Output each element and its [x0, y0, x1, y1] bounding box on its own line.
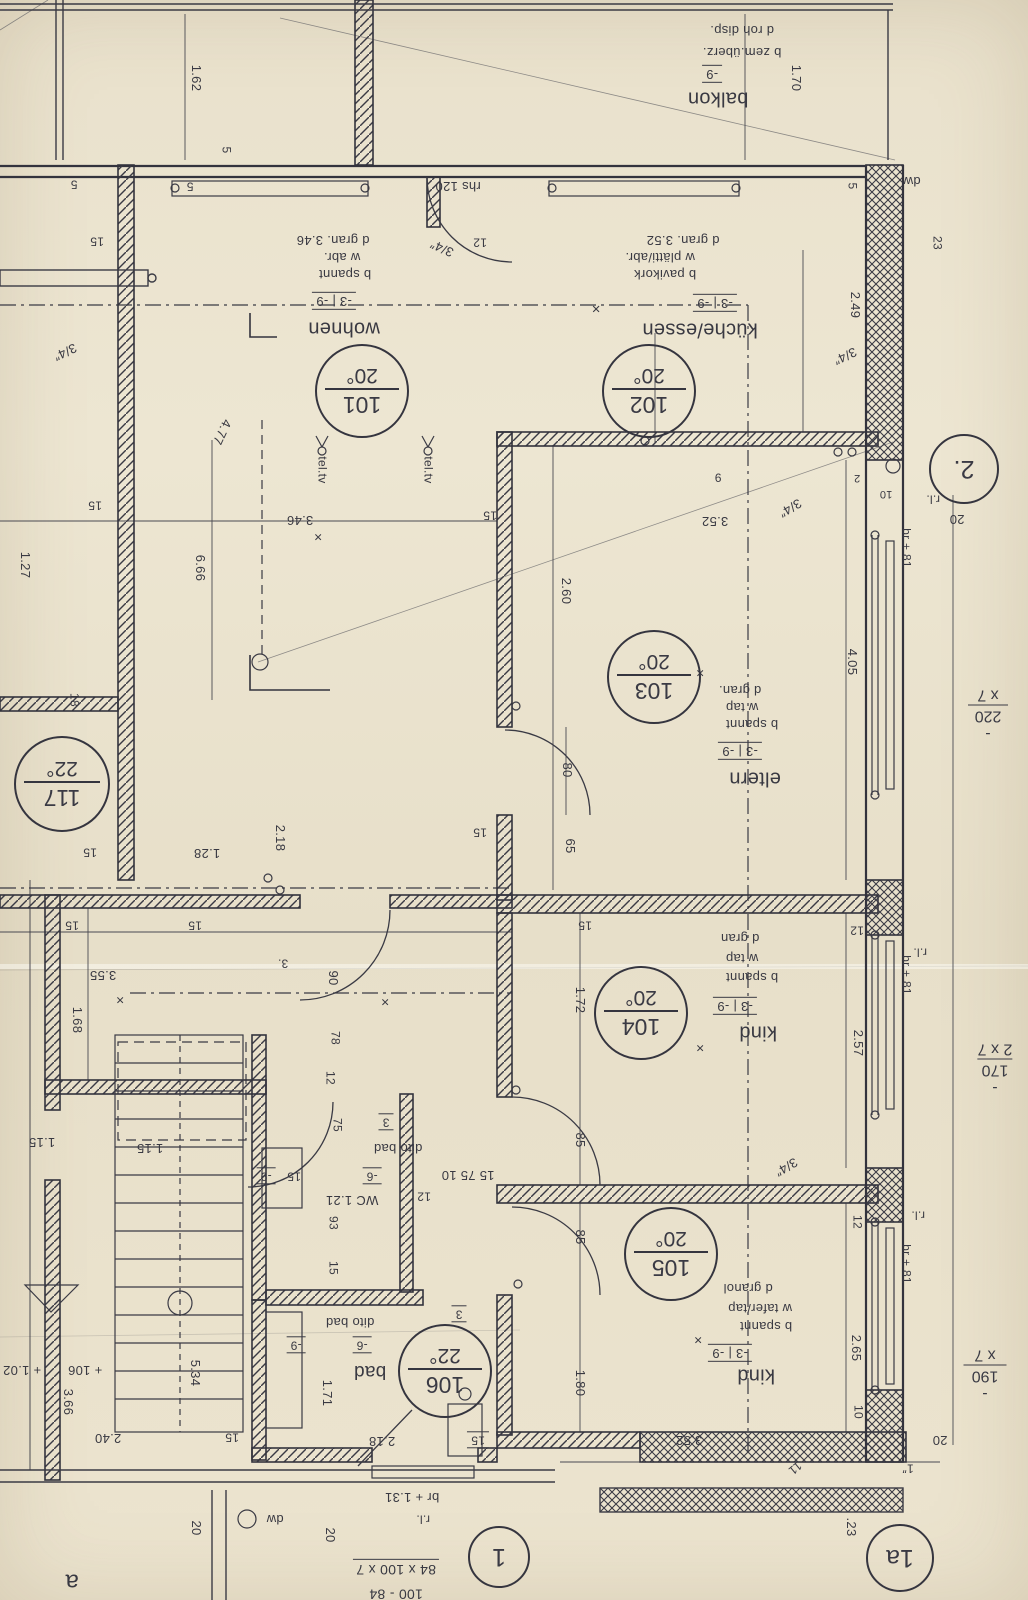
- dim-label: 3.55: [90, 968, 117, 982]
- dim-label: 15: [467, 1432, 489, 1449]
- window-spec: - 190x 7: [964, 1346, 1007, 1403]
- dim-label: d gran: [721, 931, 760, 945]
- room-temperature: 20°: [634, 1227, 708, 1252]
- dim-label: 3/4″: [831, 345, 858, 367]
- room-temperature: 20°: [325, 364, 399, 389]
- dim-label: d gran. 3.52: [647, 233, 720, 247]
- room-stamp-104: 10420°: [594, 966, 688, 1060]
- room-number: 104: [604, 1011, 678, 1041]
- dim-label: d gran. 3.46: [297, 233, 370, 247]
- window-spec-size: - 190: [964, 1365, 1007, 1403]
- dim-label: 75: [331, 1118, 344, 1132]
- dim-label: w plätti/abr.: [625, 250, 695, 264]
- dim-label: 15: [287, 1170, 301, 1183]
- dim-label: 10: [852, 1405, 865, 1419]
- dim-label: 1.70: [789, 65, 803, 92]
- dim-label: 12: [324, 1071, 337, 1085]
- dim-label: -3 | -9: [718, 742, 762, 760]
- dim-label: 2: [854, 471, 860, 483]
- note-dw: dw: [266, 1512, 283, 1526]
- dim-label: ×: [116, 993, 124, 1008]
- dim-label: tel.tv: [316, 456, 329, 483]
- dim-label: 2.40: [95, 1431, 122, 1445]
- dim-label: 12: [851, 1215, 864, 1229]
- dim-label: 5: [187, 180, 194, 193]
- dim-label: -9: [256, 1168, 275, 1185]
- dim-label: 1.28: [194, 846, 221, 860]
- dim-label: w abr.: [324, 250, 360, 264]
- dim-label: r.l.: [911, 1209, 925, 1222]
- dim-label: 4.05: [845, 649, 859, 676]
- dim-label: b spannt: [726, 717, 778, 731]
- position-marker-2.: 2.: [929, 434, 999, 504]
- dim-label: ×: [696, 1041, 704, 1056]
- dim-label: 5: [71, 178, 78, 191]
- dim-label: 6.66: [193, 555, 207, 582]
- dim-label: 12: [850, 924, 864, 937]
- dim-label: ×: [381, 995, 389, 1010]
- room-temperature: 22°: [408, 1344, 482, 1369]
- dim-label: br + 81: [900, 955, 913, 995]
- position-marker-1a: 1a: [866, 1524, 934, 1592]
- note-dw: dw: [903, 174, 920, 188]
- dim-label: b spannt: [740, 1319, 792, 1333]
- dim-label: b zem.überz.: [703, 45, 782, 59]
- room-temperature: 20°: [617, 650, 691, 675]
- room-stamp-117: 11722°: [14, 736, 110, 832]
- dim-label: -9: [702, 65, 722, 83]
- dim-label: 3.66: [61, 1389, 75, 1416]
- dim-label: 10: [880, 487, 893, 499]
- room-name-balkon: balkon: [688, 88, 749, 109]
- dim-label: 3/4″: [51, 341, 78, 363]
- dim-label: -6: [352, 1337, 371, 1354]
- dim-label: 15: [83, 846, 97, 859]
- dim-label: 90: [326, 970, 340, 985]
- dim-label: 12: [473, 236, 487, 249]
- dim-label: 1″: [902, 1462, 914, 1475]
- dim-label: 3.: [278, 957, 289, 970]
- window-spec: - 220x 7: [968, 686, 1008, 743]
- dim-label: 9: [715, 471, 722, 484]
- dim-label: 2.18: [273, 825, 287, 852]
- dim-label: 3.52: [676, 1433, 703, 1447]
- dim-label: 1.72: [573, 987, 587, 1014]
- dim-label: 5: [220, 147, 233, 154]
- dim-label: WC 1.21: [326, 1193, 379, 1207]
- dim-label: 1.68: [70, 1007, 84, 1034]
- dim-label: 15: [188, 919, 202, 932]
- window-spec-type: 2 x 7: [978, 1040, 1013, 1059]
- dim-label: 15: [90, 235, 104, 248]
- room-name-wohnen: wohnen: [308, 318, 380, 339]
- room-stamp-105: 10520°: [624, 1207, 718, 1301]
- dim-label: 20: [323, 1527, 337, 1542]
- dim-label: 3/4″: [772, 1155, 799, 1179]
- dim-label: d roh disp.: [710, 23, 774, 37]
- dim-label: 2.65: [849, 1335, 863, 1362]
- dim-label: 1.15: [137, 1141, 164, 1155]
- room-number: 102: [612, 389, 686, 419]
- position-marker-label: 1a: [886, 1544, 914, 1573]
- dim-label: 2.49: [848, 292, 862, 319]
- dim-label: 2.60: [559, 578, 573, 605]
- dim-label: 18: [68, 693, 81, 707]
- dim-label: ×: [314, 530, 322, 545]
- dim-label: 15: [483, 509, 497, 522]
- dim-label: w tafer/tap: [728, 1301, 792, 1315]
- dim-label: 23: [931, 236, 944, 250]
- dim-label: d gran.: [719, 683, 762, 697]
- dim-label: 20: [189, 1520, 203, 1535]
- dim-label: 3: [379, 1114, 394, 1131]
- dim-label: rhs 120: [435, 179, 480, 193]
- dim-label: 11: [786, 1459, 804, 1477]
- dim-label: -3 | -9: [312, 292, 356, 310]
- dim-label: 3/4″: [776, 496, 803, 520]
- dim-label: 80: [560, 762, 574, 777]
- room-name-kueche-essen: küche/essen: [642, 319, 758, 340]
- dim-label: .23: [844, 1518, 858, 1537]
- dim-label: 3: [452, 1306, 467, 1323]
- dim-label: 2.18: [369, 1434, 396, 1448]
- dim-label: w tap: [726, 951, 759, 965]
- dim-label: + 106: [68, 1363, 102, 1377]
- dim-label: 2.57: [851, 1030, 865, 1057]
- room-stamp-101: 10120°: [315, 344, 409, 438]
- dim-label: 15: [327, 1261, 340, 1275]
- dim-label: 93: [327, 1216, 340, 1230]
- room-stamp-106: 10622°: [398, 1324, 492, 1418]
- dim-label: 100 - 84: [369, 1587, 423, 1600]
- dim-label: d granol: [723, 1281, 772, 1295]
- dim-label: 1.80: [573, 1370, 587, 1397]
- position-marker-1: 1: [468, 1526, 530, 1588]
- room-name-kind-105: kind: [737, 1365, 775, 1386]
- window-spec-type: x 7: [964, 1346, 1007, 1365]
- dim-label: br + 81: [900, 1244, 913, 1284]
- dim-label: 12: [417, 1190, 431, 1203]
- dim-label: b spannt: [726, 970, 778, 984]
- window-spec-size: - 220: [968, 705, 1008, 743]
- dim-label: + 1.02: [3, 1363, 41, 1377]
- dim-label: 15: [225, 1431, 239, 1444]
- dim-label: 15: [473, 826, 487, 839]
- dim-label: 1.62: [189, 65, 203, 92]
- dim-label: 5.34: [188, 1360, 202, 1387]
- dim-label: 3/4″: [428, 237, 455, 259]
- window-spec-type: x 7: [968, 686, 1008, 705]
- room-name-kind-104: kind: [739, 1022, 777, 1043]
- dim-label: 1.71: [320, 1380, 334, 1407]
- dim-label: w tap: [726, 700, 759, 714]
- dim-label: -3 | -9: [713, 997, 757, 1015]
- room-name-bad: bad: [354, 1361, 387, 1381]
- room-number: 103: [617, 675, 691, 705]
- dim-label: br + 81: [900, 528, 913, 568]
- dim-label: b pavikork: [634, 267, 696, 281]
- dim-label: 84 x 100 x 7: [353, 1559, 439, 1577]
- dim-label: 3.52: [702, 514, 729, 528]
- room-temperature: 20°: [612, 364, 686, 389]
- dim-label: dito bad: [326, 1315, 375, 1329]
- dim-label: br + 1.31: [385, 1490, 439, 1504]
- dim-label: 85: [573, 1132, 587, 1147]
- dim-label: ×: [694, 1333, 702, 1348]
- room-number: 106: [408, 1369, 482, 1399]
- dim-label: b spannt: [319, 267, 371, 281]
- position-marker-label: 1: [492, 1543, 506, 1572]
- dim-label: 15: [578, 919, 592, 932]
- dim-label: -3 | -9: [693, 294, 737, 312]
- dim-label: 78: [329, 1031, 342, 1045]
- room-name-eltern: eltern: [729, 768, 781, 789]
- floor-plan-sheet: d roh disp.b zem.überz.-9balkon1.701.625…: [0, 0, 1028, 1600]
- room-temperature: 20°: [604, 986, 678, 1011]
- dim-label: 65: [563, 838, 577, 853]
- dim-label: r.l.: [416, 1513, 430, 1526]
- room-number: 117: [24, 782, 99, 812]
- room-temperature: 22°: [24, 757, 99, 782]
- dim-label: r.l.: [913, 946, 927, 959]
- dim-label: 1.15: [29, 1135, 56, 1149]
- grid-letter-a: a: [65, 1569, 79, 1594]
- dim-label: dito bad: [374, 1141, 423, 1155]
- window-spec-size: - 170: [978, 1059, 1013, 1097]
- dim-label: 3.46: [287, 513, 314, 527]
- room-number: 101: [325, 389, 399, 419]
- window-spec: - 1702 x 7: [978, 1040, 1013, 1097]
- room-number: 105: [634, 1252, 708, 1282]
- label-layer: d roh disp.b zem.überz.-9balkon1.701.625…: [0, 0, 1028, 1600]
- position-marker-label: 2.: [954, 455, 975, 484]
- dim-label: 4.77: [210, 417, 234, 447]
- dim-label: 15: [65, 919, 79, 932]
- dim-label: -6: [362, 1168, 381, 1185]
- dim-label: tel.tv: [422, 456, 435, 483]
- dim-label: 1.27: [18, 552, 32, 579]
- dim-label: ×: [591, 300, 600, 316]
- dim-label: r.l.: [926, 493, 940, 506]
- dim-label: 20: [949, 512, 964, 526]
- room-stamp-103: 10320°: [607, 630, 701, 724]
- room-stamp-102: 10220°: [602, 344, 696, 438]
- dim-label: -9: [286, 1337, 305, 1354]
- dim-label: 85: [573, 1229, 587, 1244]
- dim-label: 20: [932, 1433, 947, 1447]
- dim-label: 15: [88, 499, 102, 512]
- dim-label: -3 | -9: [708, 1344, 752, 1362]
- dim-label: 5: [846, 183, 859, 190]
- dim-label: 15 75 10: [441, 1168, 494, 1182]
